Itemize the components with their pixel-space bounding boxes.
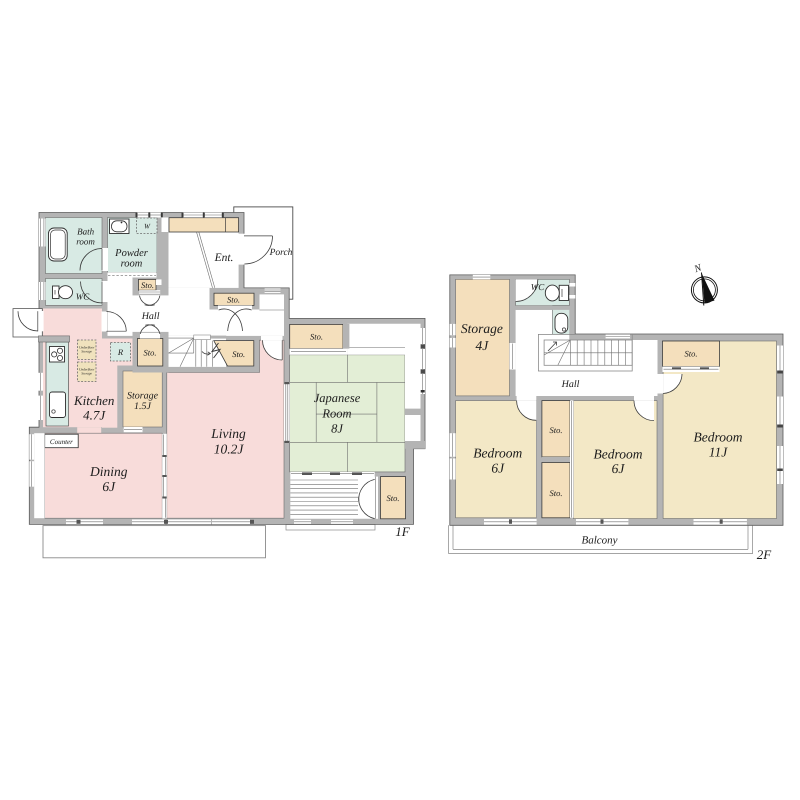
svg-text:Bedroom: Bedroom xyxy=(594,447,643,462)
svg-text:1F: 1F xyxy=(395,524,411,539)
svg-text:Sto.: Sto. xyxy=(144,348,157,358)
svg-text:Hall: Hall xyxy=(561,379,580,390)
svg-text:Storage: Storage xyxy=(81,372,92,376)
svg-text:4J: 4J xyxy=(476,338,490,353)
svg-text:Living: Living xyxy=(210,426,246,441)
svg-text:Bedroom: Bedroom xyxy=(473,446,522,461)
svg-text:room: room xyxy=(121,259,143,270)
svg-text:Hall: Hall xyxy=(141,311,160,322)
svg-text:Sto.: Sto. xyxy=(550,488,563,498)
svg-text:Balcony: Balcony xyxy=(581,535,617,547)
svg-text:Counter: Counter xyxy=(50,438,73,446)
svg-text:N: N xyxy=(692,262,704,275)
svg-text:6J: 6J xyxy=(612,461,626,476)
svg-text:Powder: Powder xyxy=(114,248,149,259)
svg-text:6J: 6J xyxy=(491,461,505,476)
svg-text:Dining: Dining xyxy=(89,464,128,479)
svg-text:Storage: Storage xyxy=(127,391,159,402)
svg-text:WC: WC xyxy=(531,282,545,292)
svg-text:WC: WC xyxy=(76,292,90,302)
svg-text:Bedroom: Bedroom xyxy=(694,430,743,445)
svg-text:6J: 6J xyxy=(102,479,116,494)
svg-text:4.7J: 4.7J xyxy=(83,408,106,423)
svg-text:2F: 2F xyxy=(757,547,773,562)
svg-text:Sto.: Sto. xyxy=(227,295,240,305)
svg-text:1.5J: 1.5J xyxy=(134,401,152,412)
svg-text:Sto.: Sto. xyxy=(141,280,154,290)
svg-text:Sto.: Sto. xyxy=(550,425,563,435)
svg-text:10.2J: 10.2J xyxy=(214,442,245,457)
svg-text:11J: 11J xyxy=(709,445,728,460)
svg-text:Sto.: Sto. xyxy=(685,349,698,359)
svg-text:Sto.: Sto. xyxy=(310,332,323,342)
svg-text:Japanese: Japanese xyxy=(314,391,361,405)
svg-text:Sto.: Sto. xyxy=(232,349,245,359)
svg-text:Room: Room xyxy=(321,407,351,421)
svg-text:Bath: Bath xyxy=(77,227,94,237)
svg-text:R: R xyxy=(117,347,124,357)
svg-text:Storage: Storage xyxy=(81,350,92,354)
svg-text:Sto.: Sto. xyxy=(387,493,400,503)
svg-text:room: room xyxy=(76,237,95,247)
svg-text:Ent.: Ent. xyxy=(214,252,234,264)
svg-text:Porch: Porch xyxy=(269,248,293,258)
svg-text:Storage: Storage xyxy=(461,321,503,336)
svg-text:8J: 8J xyxy=(331,422,344,436)
svg-text:Kitchen: Kitchen xyxy=(73,393,114,408)
